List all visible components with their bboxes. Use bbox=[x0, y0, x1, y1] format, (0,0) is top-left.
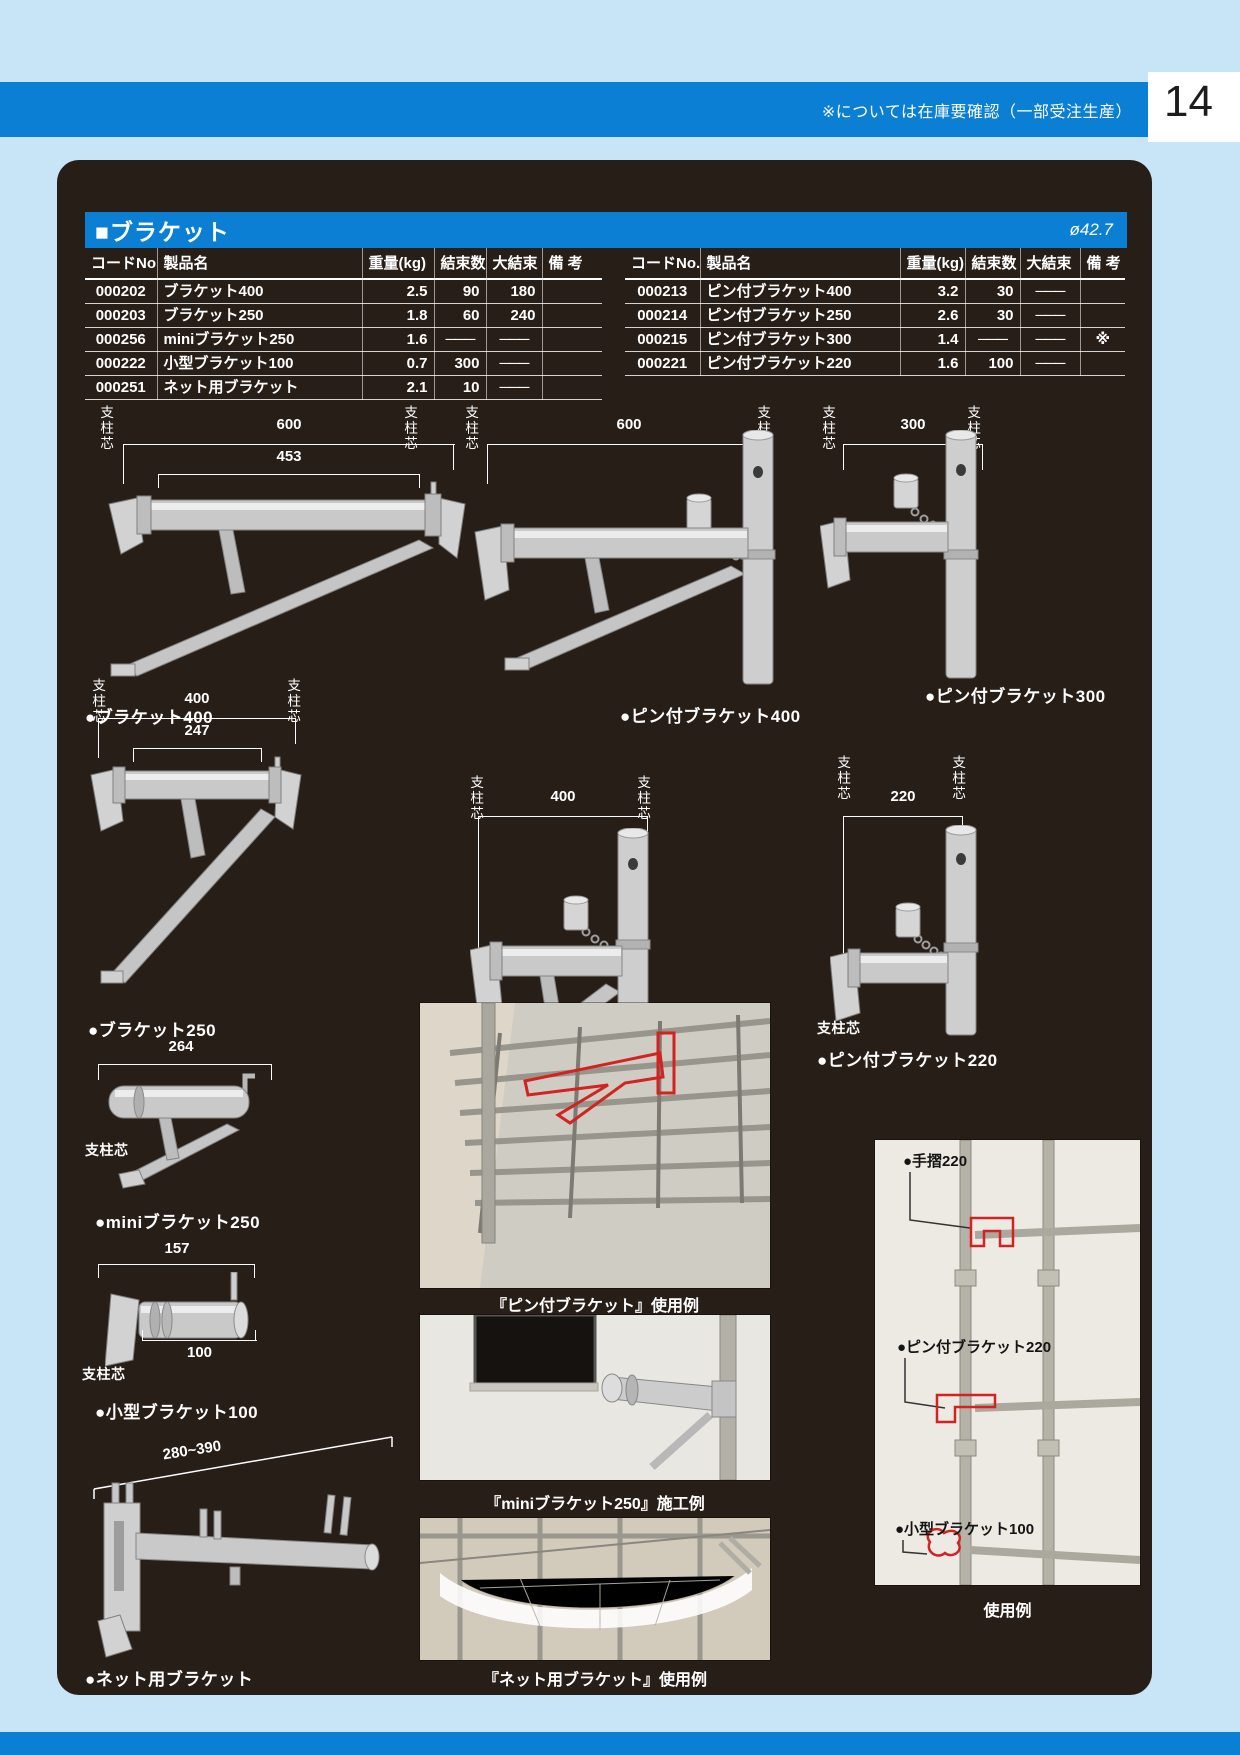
table-row: 000256 miniブラケット250 1.6 ─── ─── bbox=[85, 328, 602, 352]
cell-code: 000215 bbox=[625, 328, 700, 352]
header-bar: ※については在庫要確認（一部受注生産） bbox=[0, 82, 1148, 137]
pin-bracket220-figure-image bbox=[830, 825, 990, 1050]
dimension-label: 220 bbox=[843, 788, 963, 805]
column-header: 備 考 bbox=[1080, 248, 1125, 279]
cell-name: ネット用ブラケット bbox=[157, 376, 362, 400]
cell-bundle: 300 bbox=[434, 352, 486, 376]
page-number: 14 bbox=[1148, 72, 1240, 126]
cell-weight: 1.6 bbox=[900, 352, 965, 376]
table-header-row: コードNo. 製品名 重量(kg) 結束数 大結束 備 考 bbox=[625, 248, 1125, 279]
column-header: 重量(kg) bbox=[362, 248, 434, 279]
cell-code: 000221 bbox=[625, 352, 700, 376]
pin-bracket400-figure-image bbox=[465, 430, 795, 695]
figure-caption: ●ピン付ブラケット220 bbox=[817, 1046, 998, 1071]
dimension-label: 453 bbox=[217, 448, 361, 465]
spec-table-left: コードNo. 製品名 重量(kg) 結束数 大結束 備 考 000202 ブラケ… bbox=[85, 248, 602, 400]
mini-bracket250-figure-image bbox=[95, 1072, 285, 1197]
dimension-tick bbox=[142, 1330, 143, 1340]
header-note: ※については在庫要確認（一部受注生産） bbox=[822, 98, 1148, 122]
figure-caption: ●ネット用ブラケット bbox=[85, 1665, 253, 1690]
pillar-center-label: 支柱芯 bbox=[817, 1018, 861, 1038]
cell-bundle: ─── bbox=[965, 328, 1020, 352]
cell-note bbox=[1080, 352, 1125, 376]
cell-weight: 1.8 bbox=[362, 304, 434, 328]
photo-label-pin-bracket220: ●ピン付ブラケット220 bbox=[897, 1336, 1051, 1357]
cell-large-bundle: ─── bbox=[1020, 328, 1080, 352]
dimension-tick bbox=[255, 1330, 256, 1340]
cell-code: 000222 bbox=[85, 352, 157, 376]
cell-code: 000213 bbox=[625, 279, 700, 304]
pipe-diameter-note: ø42.7 bbox=[1070, 220, 1127, 240]
cell-note bbox=[542, 376, 602, 400]
cell-weight: 3.2 bbox=[900, 279, 965, 304]
pin-bracket300-figure-image bbox=[820, 430, 1010, 680]
pillar-center-label: 支柱芯 bbox=[98, 405, 112, 452]
dimension-label: 400 bbox=[125, 690, 269, 707]
table-row: 000213 ピン付ブラケット400 3.2 30 ─── bbox=[625, 279, 1125, 304]
cell-large-bundle: 240 bbox=[486, 304, 542, 328]
dimension-tick bbox=[453, 444, 454, 470]
cell-large-bundle: 180 bbox=[486, 279, 542, 304]
cell-name: miniブラケット250 bbox=[157, 328, 362, 352]
column-header: 製品名 bbox=[700, 248, 900, 279]
pillar-center-label: 支柱芯 bbox=[468, 775, 482, 822]
figure-caption: ●ピン付ブラケット300 bbox=[925, 682, 1106, 707]
photo-caption: 使用例 bbox=[875, 1597, 1140, 1621]
dimension-line bbox=[478, 816, 648, 817]
dimension-line bbox=[142, 1340, 257, 1341]
cell-code: 000251 bbox=[85, 376, 157, 400]
column-header: コードNo. bbox=[625, 248, 700, 279]
column-header: 大結束 bbox=[1020, 248, 1080, 279]
photo-mini-bracket-install bbox=[420, 1315, 770, 1480]
cell-note bbox=[542, 352, 602, 376]
cell-weight: 1.4 bbox=[900, 328, 965, 352]
cell-large-bundle: ─── bbox=[1020, 279, 1080, 304]
cell-note: ※ bbox=[1080, 328, 1125, 352]
column-header: 重量(kg) bbox=[900, 248, 965, 279]
table-row: 000251 ネット用ブラケット 2.1 10 ─── bbox=[85, 376, 602, 400]
net-bracket-figure-image bbox=[80, 1425, 410, 1670]
column-header: 大結束 bbox=[486, 248, 542, 279]
column-header: 結束数 bbox=[965, 248, 1020, 279]
cell-weight: 0.7 bbox=[362, 352, 434, 376]
pillar-center-label: 支柱芯 bbox=[85, 1140, 129, 1160]
cell-note bbox=[1080, 279, 1125, 304]
table-row: 000222 小型ブラケット100 0.7 300 ─── bbox=[85, 352, 602, 376]
pillar-center-label: 支柱芯 bbox=[635, 775, 649, 822]
bracket400-figure-image bbox=[97, 480, 477, 680]
dimension-line bbox=[98, 1064, 272, 1065]
dimension-tick bbox=[295, 718, 296, 744]
section-title-bar: ■ブラケット ø42.7 bbox=[85, 212, 1127, 248]
figure-caption: ●ピン付ブラケット400 bbox=[620, 702, 801, 727]
photo-net-bracket-usage bbox=[420, 1518, 770, 1660]
cell-bundle: 30 bbox=[965, 304, 1020, 328]
dimension-label: 157 bbox=[113, 1240, 241, 1257]
photo-caption: 『ネット用ブラケット』使用例 bbox=[420, 1666, 770, 1690]
dimension-line bbox=[843, 816, 963, 817]
cell-bundle: 10 bbox=[434, 376, 486, 400]
dimension-label: 100 bbox=[142, 1344, 257, 1361]
figure-caption: ●小型ブラケット100 bbox=[95, 1398, 258, 1423]
cell-bundle: ─── bbox=[434, 328, 486, 352]
dimension-tick bbox=[123, 444, 124, 484]
content-panel: ■ブラケット ø42.7 コードNo. 製品名 重量(kg) 結束数 大結束 備… bbox=[57, 160, 1152, 1695]
photo-caption: 『ピン付ブラケット』使用例 bbox=[420, 1292, 770, 1316]
column-header: 製品名 bbox=[157, 248, 362, 279]
table-header-row: コードNo. 製品名 重量(kg) 結束数 大結束 備 考 bbox=[85, 248, 602, 279]
figure-caption: ●miniブラケット250 bbox=[95, 1208, 260, 1233]
bottom-accent-bar bbox=[0, 1732, 1240, 1755]
dimension-tick bbox=[98, 1264, 99, 1278]
photo-caption: 『miniブラケット250』施工例 bbox=[420, 1490, 770, 1514]
cell-bundle: 60 bbox=[434, 304, 486, 328]
table-row: 000203 ブラケット250 1.8 60 240 bbox=[85, 304, 602, 328]
table-row: 000215 ピン付ブラケット300 1.4 ─── ─── ※ bbox=[625, 328, 1125, 352]
photo-label-small-bracket100: ●小型ブラケット100 bbox=[895, 1518, 1034, 1539]
cell-weight: 2.5 bbox=[362, 279, 434, 304]
cell-bundle: 30 bbox=[965, 279, 1020, 304]
bracket250-figure-image bbox=[85, 755, 315, 1005]
page-number-box: 14 bbox=[1148, 72, 1240, 142]
photo-pin-bracket-usage bbox=[420, 1003, 770, 1288]
dimension-label: 600 bbox=[217, 416, 361, 433]
cell-code: 000214 bbox=[625, 304, 700, 328]
dimension-label: 400 bbox=[491, 788, 635, 805]
dimension-line bbox=[133, 748, 262, 749]
cell-large-bundle: ─── bbox=[1020, 352, 1080, 376]
table-row: 000202 ブラケット400 2.5 90 180 bbox=[85, 279, 602, 304]
cell-large-bundle: ─── bbox=[486, 328, 542, 352]
cell-bundle: 90 bbox=[434, 279, 486, 304]
pillar-center-label: 支柱芯 bbox=[82, 1364, 126, 1384]
dimension-tick bbox=[98, 718, 99, 758]
cell-note bbox=[542, 304, 602, 328]
column-header: 備 考 bbox=[542, 248, 602, 279]
dimension-line bbox=[158, 474, 420, 475]
cell-note bbox=[542, 279, 602, 304]
dimension-line bbox=[98, 718, 296, 719]
cell-name: ピン付ブラケット250 bbox=[700, 304, 900, 328]
photo-label-handrail220: ●手摺220 bbox=[903, 1150, 967, 1171]
cell-bundle: 100 bbox=[965, 352, 1020, 376]
cell-large-bundle: ─── bbox=[486, 352, 542, 376]
cell-name: ピン付ブラケット400 bbox=[700, 279, 900, 304]
photo-usage-example: ●手摺220 ●ピン付ブラケット220 ●小型ブラケット100 bbox=[875, 1140, 1140, 1585]
catalog-page: ※については在庫要確認（一部受注生産） 14 ■ブラケット ø42.7 コードN… bbox=[0, 0, 1240, 1755]
column-header: コードNo. bbox=[85, 248, 157, 279]
cell-code: 000203 bbox=[85, 304, 157, 328]
cell-name: ピン付ブラケット220 bbox=[700, 352, 900, 376]
cell-note bbox=[1080, 304, 1125, 328]
dimension-label: 264 bbox=[117, 1038, 245, 1055]
cell-name: 小型ブラケット100 bbox=[157, 352, 362, 376]
section-title: ■ブラケット bbox=[85, 213, 230, 247]
table-row: 000221 ピン付ブラケット220 1.6 100 ─── bbox=[625, 352, 1125, 376]
dimension-line bbox=[123, 444, 455, 445]
cell-weight: 2.1 bbox=[362, 376, 434, 400]
cell-code: 000256 bbox=[85, 328, 157, 352]
cell-large-bundle: ─── bbox=[486, 376, 542, 400]
cell-weight: 1.6 bbox=[362, 328, 434, 352]
cell-weight: 2.6 bbox=[900, 304, 965, 328]
dimension-line bbox=[98, 1264, 255, 1265]
table-row: 000214 ピン付ブラケット250 2.6 30 ─── bbox=[625, 304, 1125, 328]
spec-table-right: コードNo. 製品名 重量(kg) 結束数 大結束 備 考 000213 ピン付… bbox=[625, 248, 1125, 376]
cell-name: ブラケット250 bbox=[157, 304, 362, 328]
cell-name: ピン付ブラケット300 bbox=[700, 328, 900, 352]
cell-note bbox=[542, 328, 602, 352]
column-header: 結束数 bbox=[434, 248, 486, 279]
cell-code: 000202 bbox=[85, 279, 157, 304]
cell-name: ブラケット400 bbox=[157, 279, 362, 304]
cell-large-bundle: ─── bbox=[1020, 304, 1080, 328]
dimension-label: 247 bbox=[125, 722, 269, 739]
